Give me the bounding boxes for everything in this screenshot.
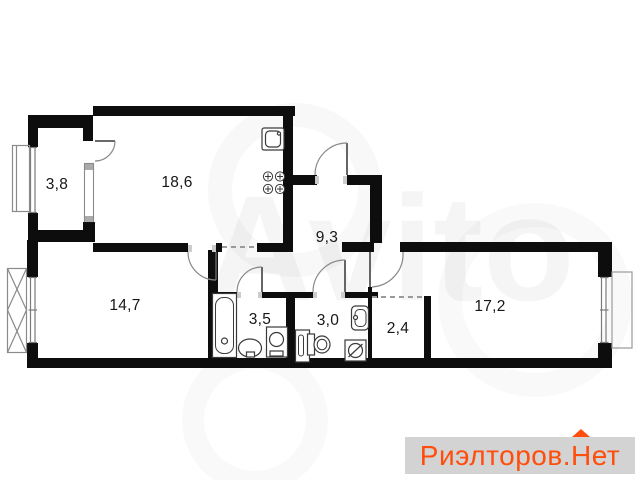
partition [85, 164, 94, 223]
wall [83, 222, 95, 232]
watermark-circle [193, 358, 317, 480]
balcony-outline [8, 269, 27, 353]
balcony-outline [13, 146, 30, 212]
wall-sink-icon [352, 306, 369, 330]
bathtub-icon [213, 294, 237, 358]
jamb [212, 245, 216, 252]
avito-watermark: Avito [193, 115, 620, 480]
pedestal-sink-icon [267, 327, 288, 357]
room-area-bathroom: 3,5 [249, 311, 271, 328]
wall [283, 106, 293, 252]
realtorov-net-watermark: Риэлторов.Нет [405, 437, 635, 474]
floorplan-drawing: Avito [0, 0, 635, 480]
door-arc [95, 141, 115, 161]
wall [257, 243, 285, 252]
wall [293, 175, 317, 185]
jamb [188, 245, 192, 252]
wall [400, 242, 608, 252]
jamb [313, 292, 317, 298]
washbasin-icon [239, 339, 262, 357]
wall [27, 240, 38, 277]
floorplan-image: Avito [0, 0, 635, 480]
jamb [237, 292, 241, 298]
partition-outline [85, 164, 94, 222]
partition-cap [85, 164, 93, 170]
wall [28, 115, 38, 147]
jamb [258, 292, 262, 298]
room-area-entry-hall: 3,8 [46, 176, 68, 193]
room-area-living-room: 17,2 [474, 298, 505, 315]
partition-cap [85, 216, 93, 222]
toilet-icon [308, 334, 331, 355]
jamb [341, 292, 345, 298]
room-area-bedroom: 14,7 [109, 297, 140, 314]
room-area-kitchen: 18,6 [161, 174, 192, 191]
wall [342, 242, 374, 252]
wall [598, 343, 612, 368]
wall [83, 128, 93, 141]
wall [93, 106, 295, 116]
room-area-toilet: 3,0 [317, 312, 340, 329]
room-area-wardrobe: 2,4 [387, 320, 410, 337]
wall [347, 175, 382, 185]
room-area-hallway: 9,3 [316, 229, 338, 246]
house-roof-icon [572, 429, 590, 437]
wall [370, 185, 382, 243]
badge-text-left: Риэлторов. [420, 437, 571, 474]
badge-text-right: ет [592, 437, 620, 474]
wall [424, 296, 431, 358]
kitchen-sink-icon [262, 128, 284, 150]
jamb [315, 176, 319, 184]
jamb [343, 176, 347, 184]
badge-letter-n: Н [571, 437, 592, 474]
washing-machine-icon [345, 340, 366, 361]
wall [27, 358, 612, 368]
wall [93, 243, 188, 252]
